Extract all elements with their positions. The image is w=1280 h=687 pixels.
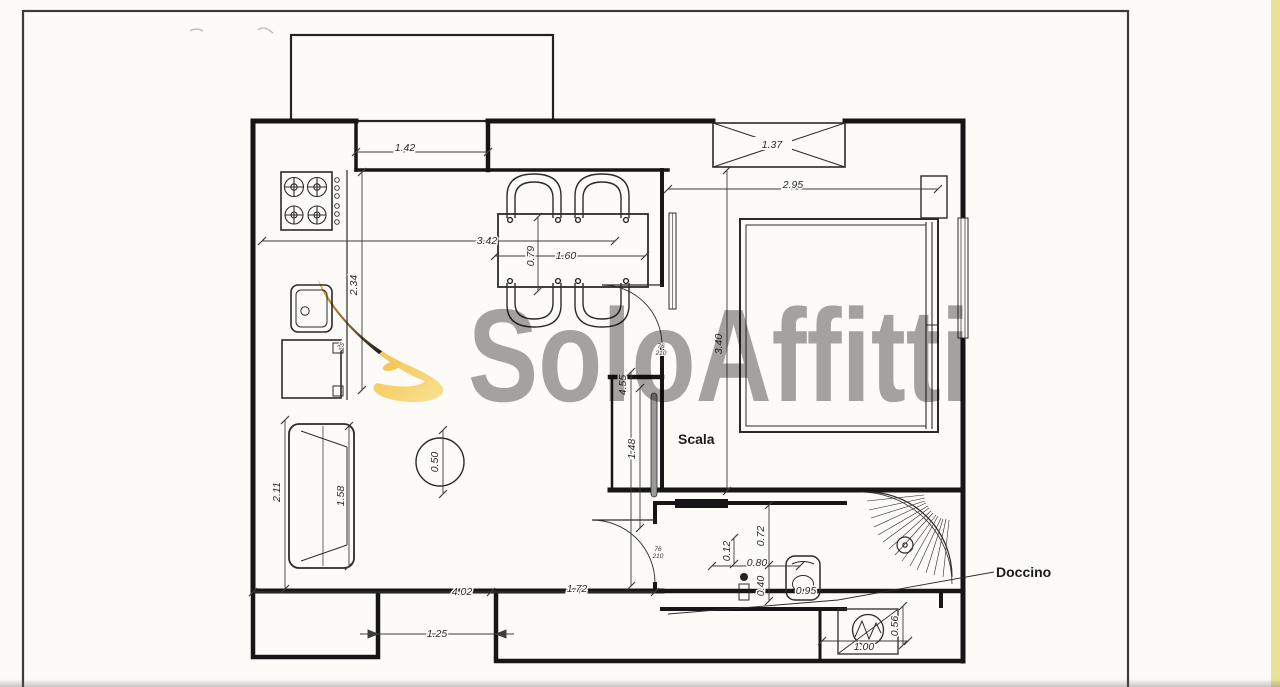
stairs-label: Scala (678, 431, 715, 447)
dim-label: 0.56 (889, 616, 901, 637)
bath-door-swing (592, 520, 655, 583)
chair (575, 174, 629, 222)
living (289, 424, 464, 568)
dim-label: 1.72 (567, 583, 588, 595)
dim-label: 0.72 (755, 526, 767, 547)
dim-label: 0.79 (525, 246, 537, 267)
upper-building-outline (291, 35, 553, 121)
stove-burners (285, 178, 327, 225)
scan-shadow (0, 679, 1280, 687)
scan-artifact (190, 28, 273, 33)
dim-label: 1.60 (556, 250, 577, 262)
floorplan-svg: 1.42 1.37 2.95 3.42 1.60 0.79 2.34 3.40 … (0, 0, 1280, 687)
sink-drain (301, 307, 309, 315)
sliding-door (675, 499, 728, 508)
chair (507, 174, 561, 222)
shower-label: Doccino (996, 564, 1051, 580)
dim-label: 0.80 (747, 557, 768, 569)
dim-label: 0.40 (755, 576, 767, 597)
dim-label: 1.25 (427, 628, 448, 640)
dim-label: 2.11 (271, 482, 283, 503)
dim-label: 0.12 (721, 541, 733, 562)
dim-label: 1.42 (395, 142, 416, 154)
dim-label: 1.37 (762, 139, 784, 151)
page-edge-strip (1271, 0, 1280, 687)
column (921, 176, 947, 218)
kitchen (281, 170, 347, 400)
dim-label: 2.34 (348, 275, 360, 297)
door-tag: 210 (652, 553, 664, 560)
dim-label: 1.48 (626, 439, 638, 460)
dim-label: 2.95 (782, 179, 804, 191)
floor-drain (740, 573, 748, 581)
stove-knobs (335, 178, 340, 225)
door-tag: 76 (654, 546, 662, 553)
bathroom (592, 492, 994, 654)
dim-label: 0.95 (796, 585, 817, 597)
dim-label: 1.00 (854, 641, 875, 653)
scanned-floorplan-page: 1.42 1.37 2.95 3.42 1.60 0.79 2.34 3.40 … (0, 0, 1280, 687)
base-cabinet (282, 340, 341, 398)
brand-watermark-text: SoloAffitti (468, 282, 970, 429)
dim-label: 0.50 (429, 452, 441, 473)
dim-label: 1.58 (335, 486, 347, 507)
dim-label: 4.02 (452, 586, 473, 598)
dim-label: 3.42 (477, 235, 498, 247)
shower-icon (860, 492, 952, 584)
watermark: SoloAffitti (318, 279, 970, 429)
